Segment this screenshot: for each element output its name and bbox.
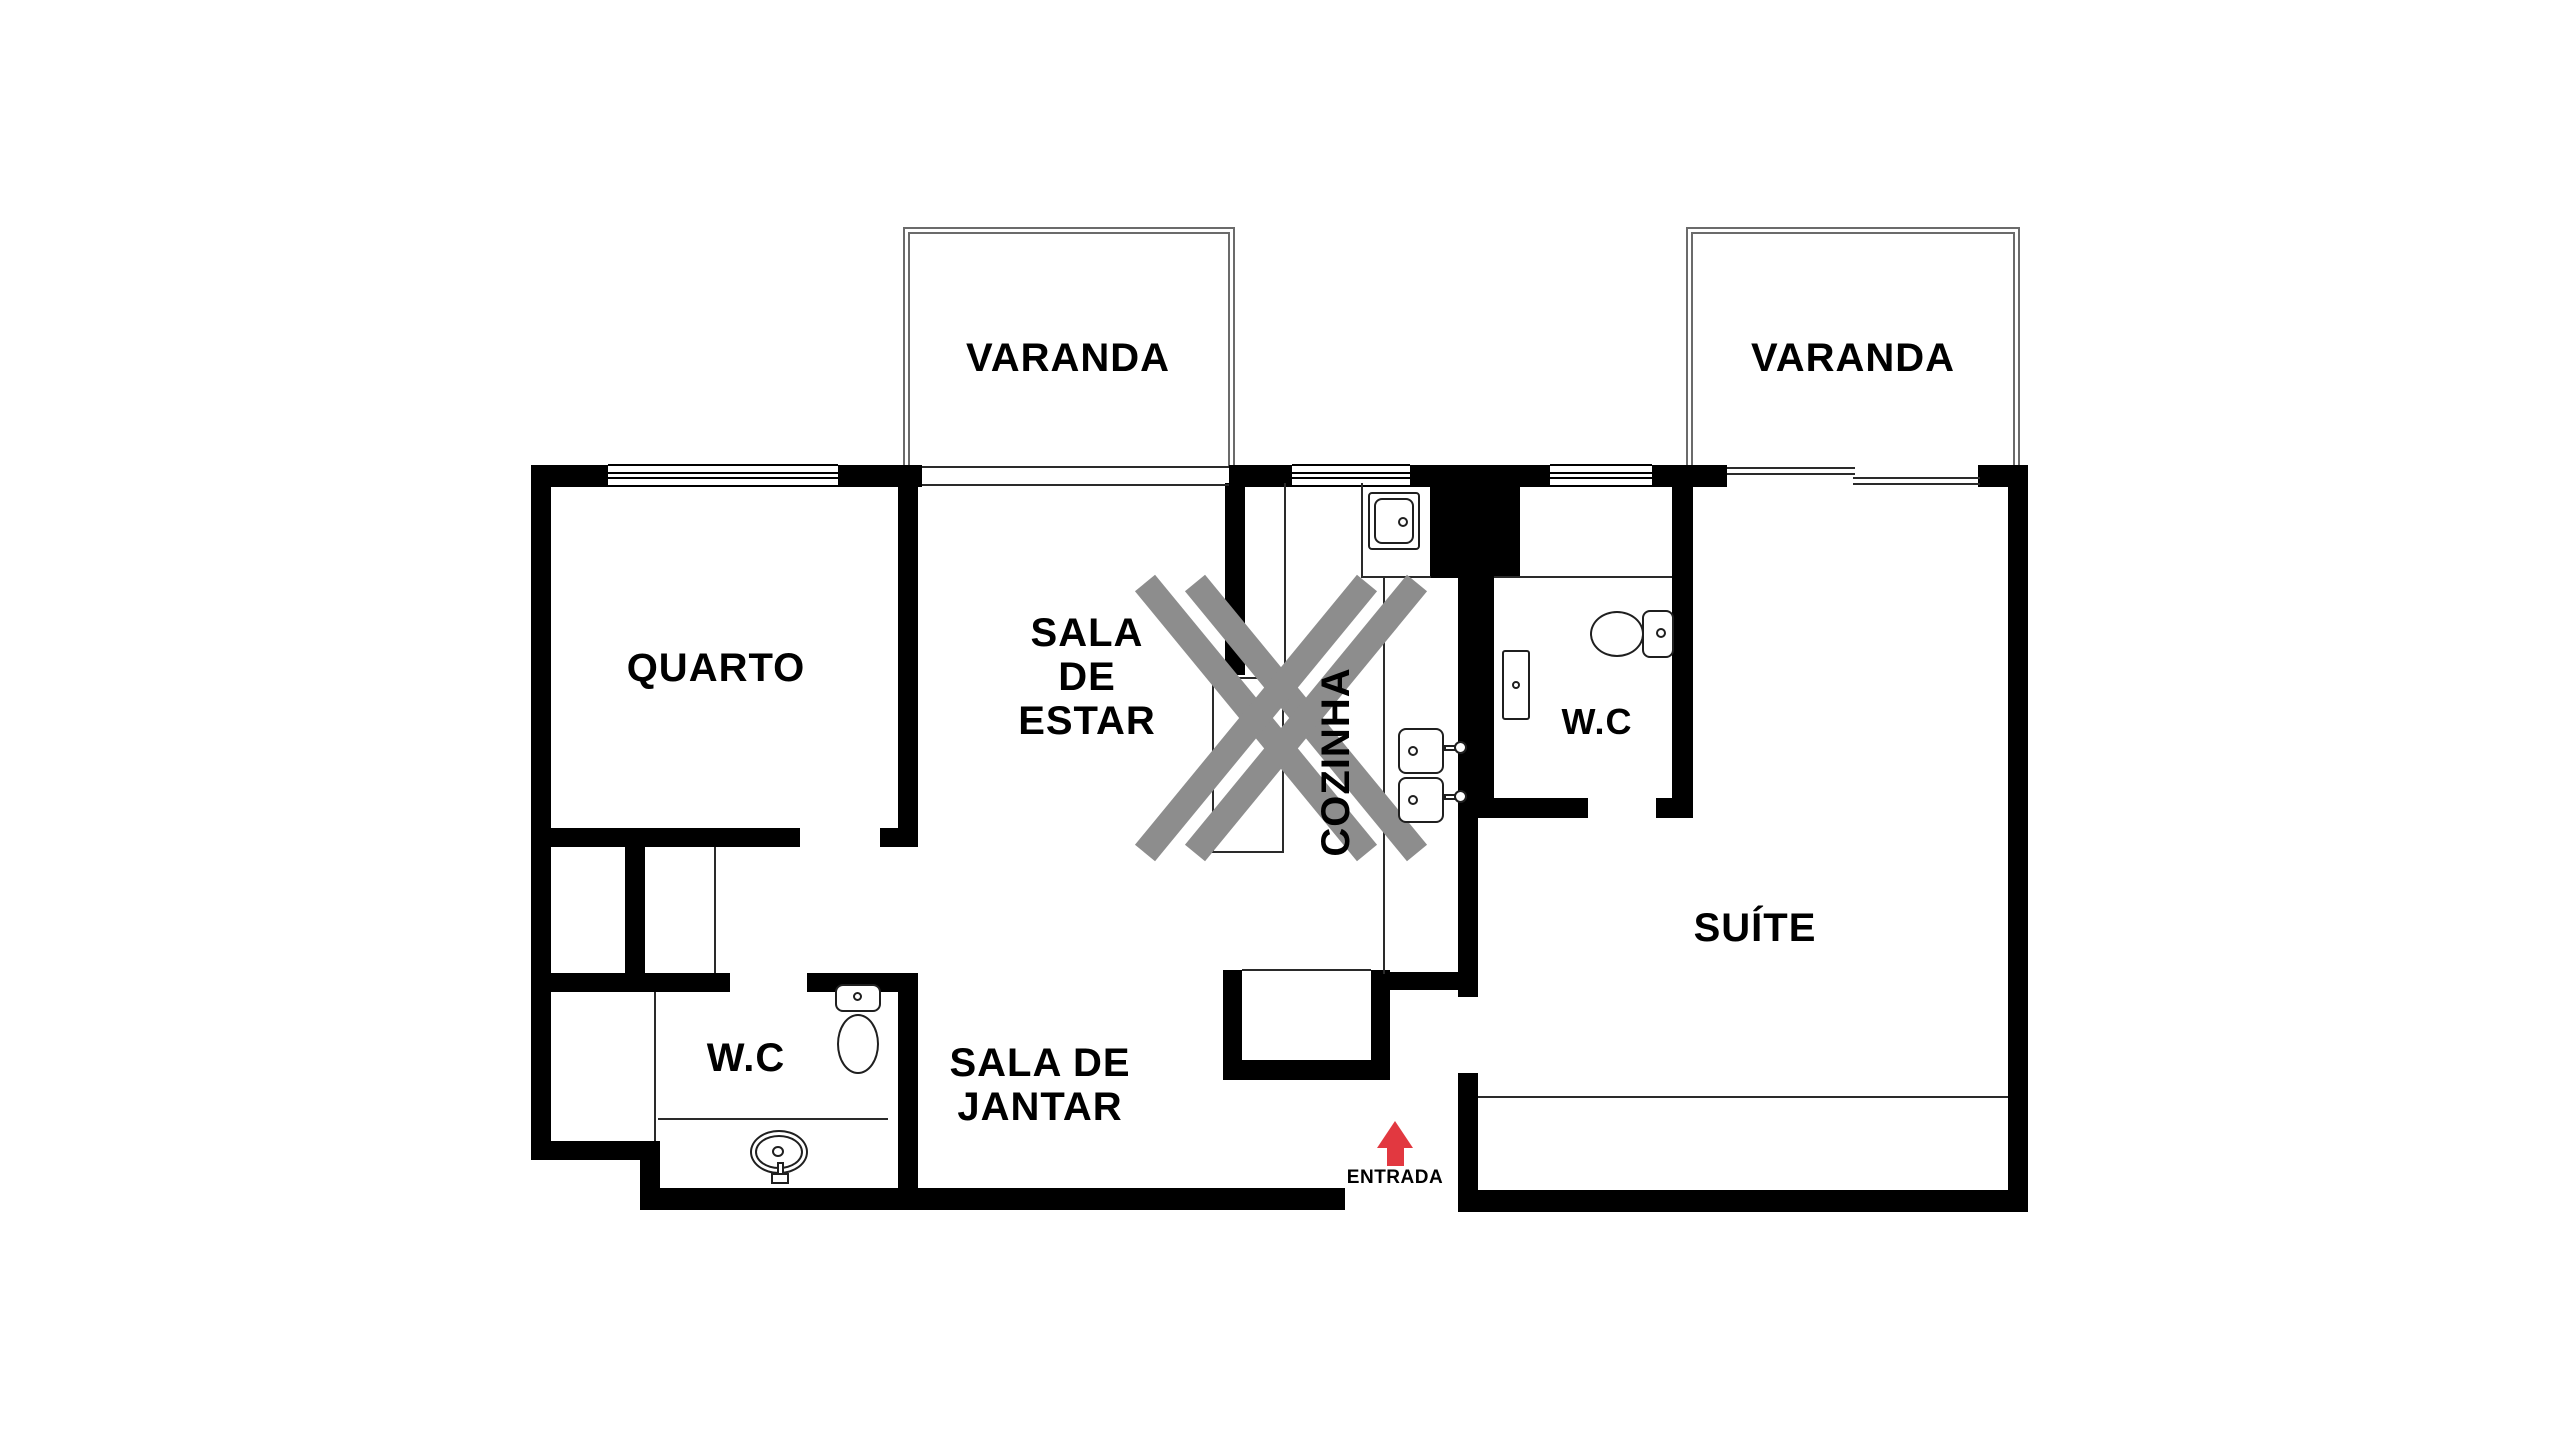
wall-closet-right [1371,970,1390,1080]
sink-drain [1398,517,1408,527]
sink-drain [1408,746,1418,756]
room-label-wc-suite: W.C [1562,700,1633,744]
glass-door-line [1727,473,1855,475]
wall-hall-suite [1458,818,1478,997]
label-line: JANTAR [949,1085,1130,1129]
wall-quarto-bottom [531,828,800,847]
wall-quarto-right [898,465,918,847]
room-label-suite: SUÍTE [1694,906,1817,950]
wall-wc-suite-bottom [1494,798,1588,818]
wall-closet-bottom [1223,1060,1390,1080]
shower-partition-line [1494,576,1672,578]
partition-line [714,847,716,973]
faucet-icon [1454,741,1467,754]
room-label-cozinha: COZINHA [1314,667,1358,856]
toilet-icon [837,1014,879,1074]
kitchen-sink-basin [1374,498,1414,544]
basin-drain [772,1146,784,1157]
window-wc-suite [1550,464,1652,487]
entrance-label: ENTRADA [1347,1156,1443,1200]
wall-bottom [640,1188,1345,1210]
faucet-icon [1454,790,1467,803]
room-label-varanda-right: VARANDA [1751,336,1955,380]
wall-wc-top [531,973,730,992]
wall [1656,798,1693,818]
glass-door-line [922,466,1229,468]
window-quarto [608,464,838,487]
label-line: DE [1018,655,1156,699]
room-label-quarto: QUARTO [627,646,806,690]
room-label-varanda-left: VARANDA [966,336,1170,380]
wall [880,828,918,847]
label-line: ESTAR [1018,699,1156,743]
wall-wc-suite-right [1672,483,1693,798]
wall [625,847,645,973]
wall-wc-right [898,973,918,1210]
glass-door-line [922,484,1229,486]
sink-drain [1408,795,1418,805]
suite-wardrobe-line [1478,1096,2008,1098]
basin-drain [1512,681,1520,689]
glass-door-line [1853,483,1980,485]
double-sink-bowl-icon [1398,777,1444,823]
vanity-counter-line [658,1118,888,1120]
toilet-button [1656,628,1666,638]
wall-bottom [1458,1190,2028,1212]
label-line: SALA [1018,611,1156,655]
floor-plan: VARANDA VARANDA QUARTO SALA DE ESTAR COZ… [0,0,2560,1440]
closet-door-line [654,992,656,1141]
double-sink-bowl-icon [1398,728,1444,774]
wall-left-exterior [531,465,551,1160]
wall-right-exterior [2008,465,2028,1212]
room-label-wc-social: W.C [707,1036,786,1080]
room-label-sala-de-estar: SALA DE ESTAR [1018,611,1156,743]
room-label-sala-de-jantar: SALA DE JANTAR [949,1041,1130,1129]
toilet-button [853,992,862,1001]
glass-door-line [1853,477,1980,479]
closet-front-line [1242,969,1371,971]
wall-kitchen-block [1430,465,1520,578]
label-line: SALA DE [949,1041,1130,1085]
glass-door-line [1727,467,1855,469]
toilet-icon [1590,611,1644,657]
wall-kitchen-wc [1458,578,1494,818]
window-kitchen [1292,464,1410,487]
demolition-x-marker-icon [1120,560,1440,870]
faucet-icon [771,1173,789,1184]
entrance-arrow-icon [1377,1121,1413,1148]
